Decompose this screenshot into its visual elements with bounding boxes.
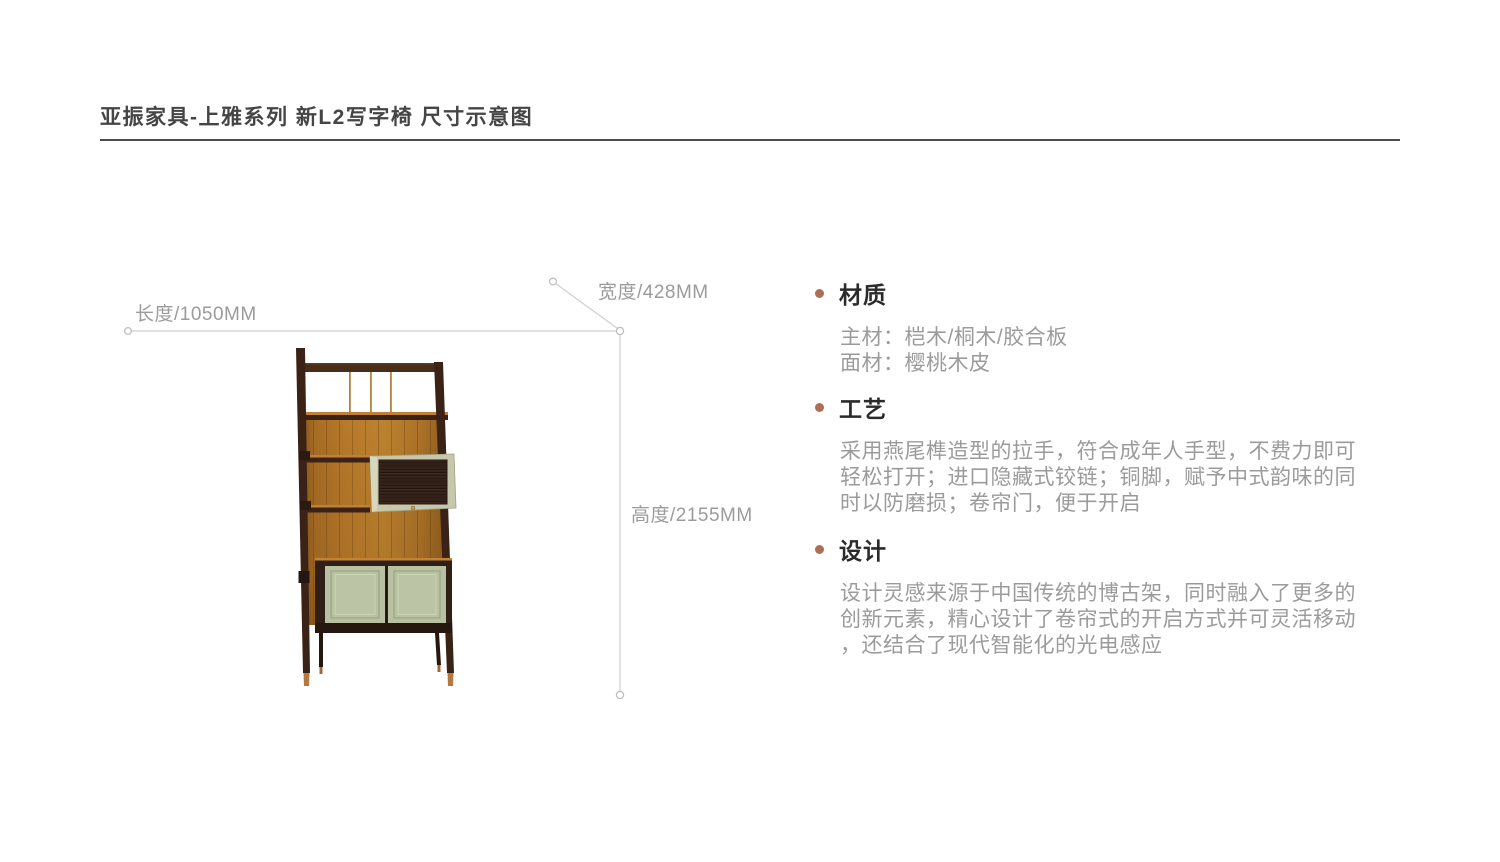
spec-line: 采用燕尾榫造型的拉手，符合成年人手型，不费力即可 [840, 439, 1425, 465]
length-dimension-label: 长度/1050MM [135, 299, 257, 326]
top-rod-2 [370, 372, 372, 412]
dimension-junction-circle [616, 327, 623, 334]
left-back-foot [320, 667, 323, 674]
bullet-icon [815, 289, 824, 298]
left-post-bracket-1 [299, 451, 310, 460]
left-post-bracket-3 [299, 571, 310, 583]
title-divider [100, 139, 1400, 141]
spec-heading-design: 设计 [839, 532, 887, 566]
left-post-bracket-2 [300, 501, 311, 510]
spec-line: 设计灵感来源于中国传统的博古架，同时融入了更多的 [840, 581, 1425, 607]
cabinet-left-door [325, 566, 385, 623]
upper-shelf-edge [299, 415, 448, 420]
width-dimension-label: 宽度/428MM [598, 277, 709, 304]
product-illustration [275, 345, 475, 700]
top-rail-highlight [299, 363, 443, 365]
spec-line: 主材：桤木/桐木/胶合板 [840, 325, 1425, 351]
spec-line: 面材：樱桃木皮 [840, 351, 1425, 377]
left-shelf-2-edge [303, 508, 370, 513]
spec-line: ，还结合了现代智能化的光电感应 [840, 633, 1425, 659]
page-canvas: 亚振家具-上雅系列 新L2写字椅 尺寸示意图 长度/1050MM 宽度/428M… [0, 0, 1500, 862]
spec-line: 时以防磨损；卷帘门，便于开启 [840, 491, 1425, 517]
bullet-icon [815, 545, 824, 554]
cabinet-bottom-rail [315, 623, 452, 633]
width-endpoint-circle [550, 278, 557, 285]
height-endpoint-circle [616, 691, 623, 698]
tambour-door [379, 460, 447, 504]
spec-heading-craft: 工艺 [839, 390, 887, 424]
tambour-knob [411, 506, 415, 510]
left-shelf-2-top [303, 505, 370, 508]
left-copper-foot [304, 673, 310, 686]
spec-line: 创新元素，精心设计了卷帘式的开启方式并可灵活移动 [840, 607, 1425, 633]
spec-section-craft: 工艺 采用燕尾榫造型的拉手，符合成年人手型，不费力即可 轻松打开；进口隐藏式铰链… [815, 390, 1425, 517]
length-endpoint-circle [125, 328, 132, 335]
right-back-foot [438, 665, 441, 672]
cabinet-right-door [388, 566, 446, 623]
spec-section-design: 设计 设计灵感来源于中国传统的博古架，同时融入了更多的 创新元素，精心设计了卷帘… [815, 532, 1425, 659]
height-dimension-label: 高度/2155MM [631, 500, 753, 527]
left-shelf-1-edge [303, 458, 370, 463]
right-copper-foot [448, 673, 454, 686]
page-title: 亚振家具-上雅系列 新L2写字椅 尺寸示意图 [100, 101, 533, 131]
spec-line: 轻松打开；进口隐藏式铰链；铜脚，赋予中式韵味的同 [840, 465, 1425, 491]
upper-shelf-top [299, 412, 448, 415]
right-back-leg [435, 633, 441, 665]
left-back-leg [319, 633, 323, 667]
top-rod-1 [349, 372, 351, 412]
spec-section-material: 材质 主材：桤木/桐木/胶合板 面材：樱桃木皮 [815, 276, 1425, 377]
cabinet-top-edge [315, 558, 452, 561]
left-shelf-1-top [303, 455, 370, 458]
spec-heading-material: 材质 [839, 276, 887, 310]
bullet-icon [815, 403, 824, 412]
top-rod-3 [390, 372, 392, 412]
